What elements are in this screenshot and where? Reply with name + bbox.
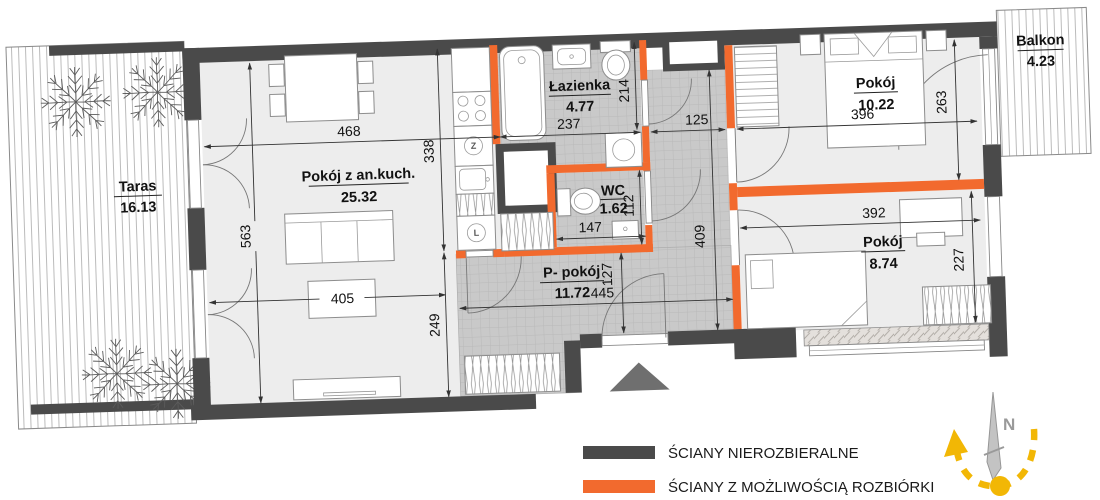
legend-label-solid-walls: ŚCIANY NIEROZBIERALNE (668, 444, 859, 462)
dim-kitchen-height: 338 (420, 139, 437, 163)
chair (269, 64, 285, 86)
room-label-taras: Taras (119, 178, 157, 195)
desk (899, 198, 962, 238)
balcony: Balkon 4.23 (996, 7, 1091, 156)
bathroom-door (641, 80, 649, 126)
toilet-wc-tank (557, 189, 571, 216)
floor-plan-page: Taras 16.13 Balkon 4.23 (0, 0, 1100, 500)
dim-wc-width: 147 (578, 219, 602, 236)
dim-bedroom1-width: 396 (851, 106, 875, 123)
floor-plan-canvas: Taras 16.13 Balkon 4.23 (0, 0, 1100, 500)
kitchen-drawers (456, 193, 495, 216)
wardrobe-bedroom2 (922, 285, 991, 325)
room-label-bath: Łazienka (549, 77, 612, 95)
hall-wardrobe (464, 353, 560, 394)
compass: N (944, 392, 1034, 496)
bathtub (499, 45, 546, 140)
dim-bedroom2-depth: 227 (950, 248, 967, 272)
hall-living-door (466, 250, 493, 257)
room-label-bedroom2: Pokój (863, 234, 903, 251)
legend-swatch-removable-walls (583, 480, 655, 493)
room-area-bath: 4.77 (566, 99, 595, 116)
kitchen-counter (451, 47, 490, 92)
dim-corridor-height: 409 (691, 224, 708, 248)
dim-bath-width: 237 (557, 115, 581, 132)
room-label-balcony: Balkon (1016, 32, 1065, 50)
legend: ŚCIANY NIEROZBIERALNE ŚCIANY Z MOŻLIWOŚC… (583, 444, 934, 496)
room-area-bedroom2: 8.74 (869, 256, 898, 273)
nightstand (926, 30, 947, 51)
dining-table (284, 54, 358, 122)
terrace: Taras 16.13 (6, 41, 214, 429)
legend-label-removable-walls: ŚCIANY Z MOŻLIWOŚCIĄ ROZBIÓRKI (668, 478, 934, 496)
desk-chair (917, 232, 945, 246)
dim-bedroom2-width: 392 (862, 204, 886, 221)
chair (359, 91, 375, 113)
entrance-door (602, 333, 668, 345)
legend-swatch-solid-walls (583, 446, 655, 459)
dim-bedroom1-depth: 263 (933, 90, 950, 114)
single-bed (745, 251, 867, 329)
dim-wc-height: 112 (620, 194, 637, 217)
room-label-hall: P- pokój (543, 264, 601, 282)
room-area-balcony: 4.23 (1027, 53, 1056, 70)
bathroom-sink (552, 44, 591, 69)
dim-living-width: 468 (337, 123, 361, 140)
sun-dot-icon (990, 476, 1010, 496)
bedroom2-side-window (987, 196, 1002, 276)
nightstand (800, 34, 821, 55)
wc-door (644, 171, 652, 223)
dim-bath-height: 214 (615, 79, 632, 103)
room-label-bedroom1: Pokój (856, 75, 896, 92)
hall-cabinet (501, 212, 554, 251)
compass-needle-icon (987, 392, 1001, 480)
chair (358, 61, 374, 83)
dishwasher-symbol: Z (471, 141, 477, 151)
terrace-door-top (187, 120, 201, 208)
dim-bath-door: 125 (685, 111, 709, 128)
floor-plan: Taras 16.13 Balkon 4.23 (6, 7, 1099, 429)
fridge-symbol: L (473, 228, 479, 238)
dim-living-lower: 249 (426, 313, 443, 337)
tv-stand (293, 376, 401, 400)
entrance-arrow-icon (609, 361, 670, 391)
washing-machine (605, 132, 642, 167)
terrace-door-bottom (192, 270, 206, 358)
room-area-hall: 11.72 (554, 285, 590, 302)
chair (270, 94, 286, 116)
sofa (285, 211, 395, 265)
room-area-living: 25.32 (341, 189, 378, 206)
dim-living-height: 563 (237, 224, 254, 248)
dim-hall-height: 127 (598, 262, 615, 286)
compass-north-label: N (1003, 415, 1015, 434)
wardrobe-bedroom1 (734, 46, 779, 127)
room-area-taras: 16.13 (120, 199, 157, 216)
dim-living-table: 405 (331, 290, 355, 307)
stove (453, 91, 492, 126)
sun-path-arrow-icon (944, 429, 968, 457)
